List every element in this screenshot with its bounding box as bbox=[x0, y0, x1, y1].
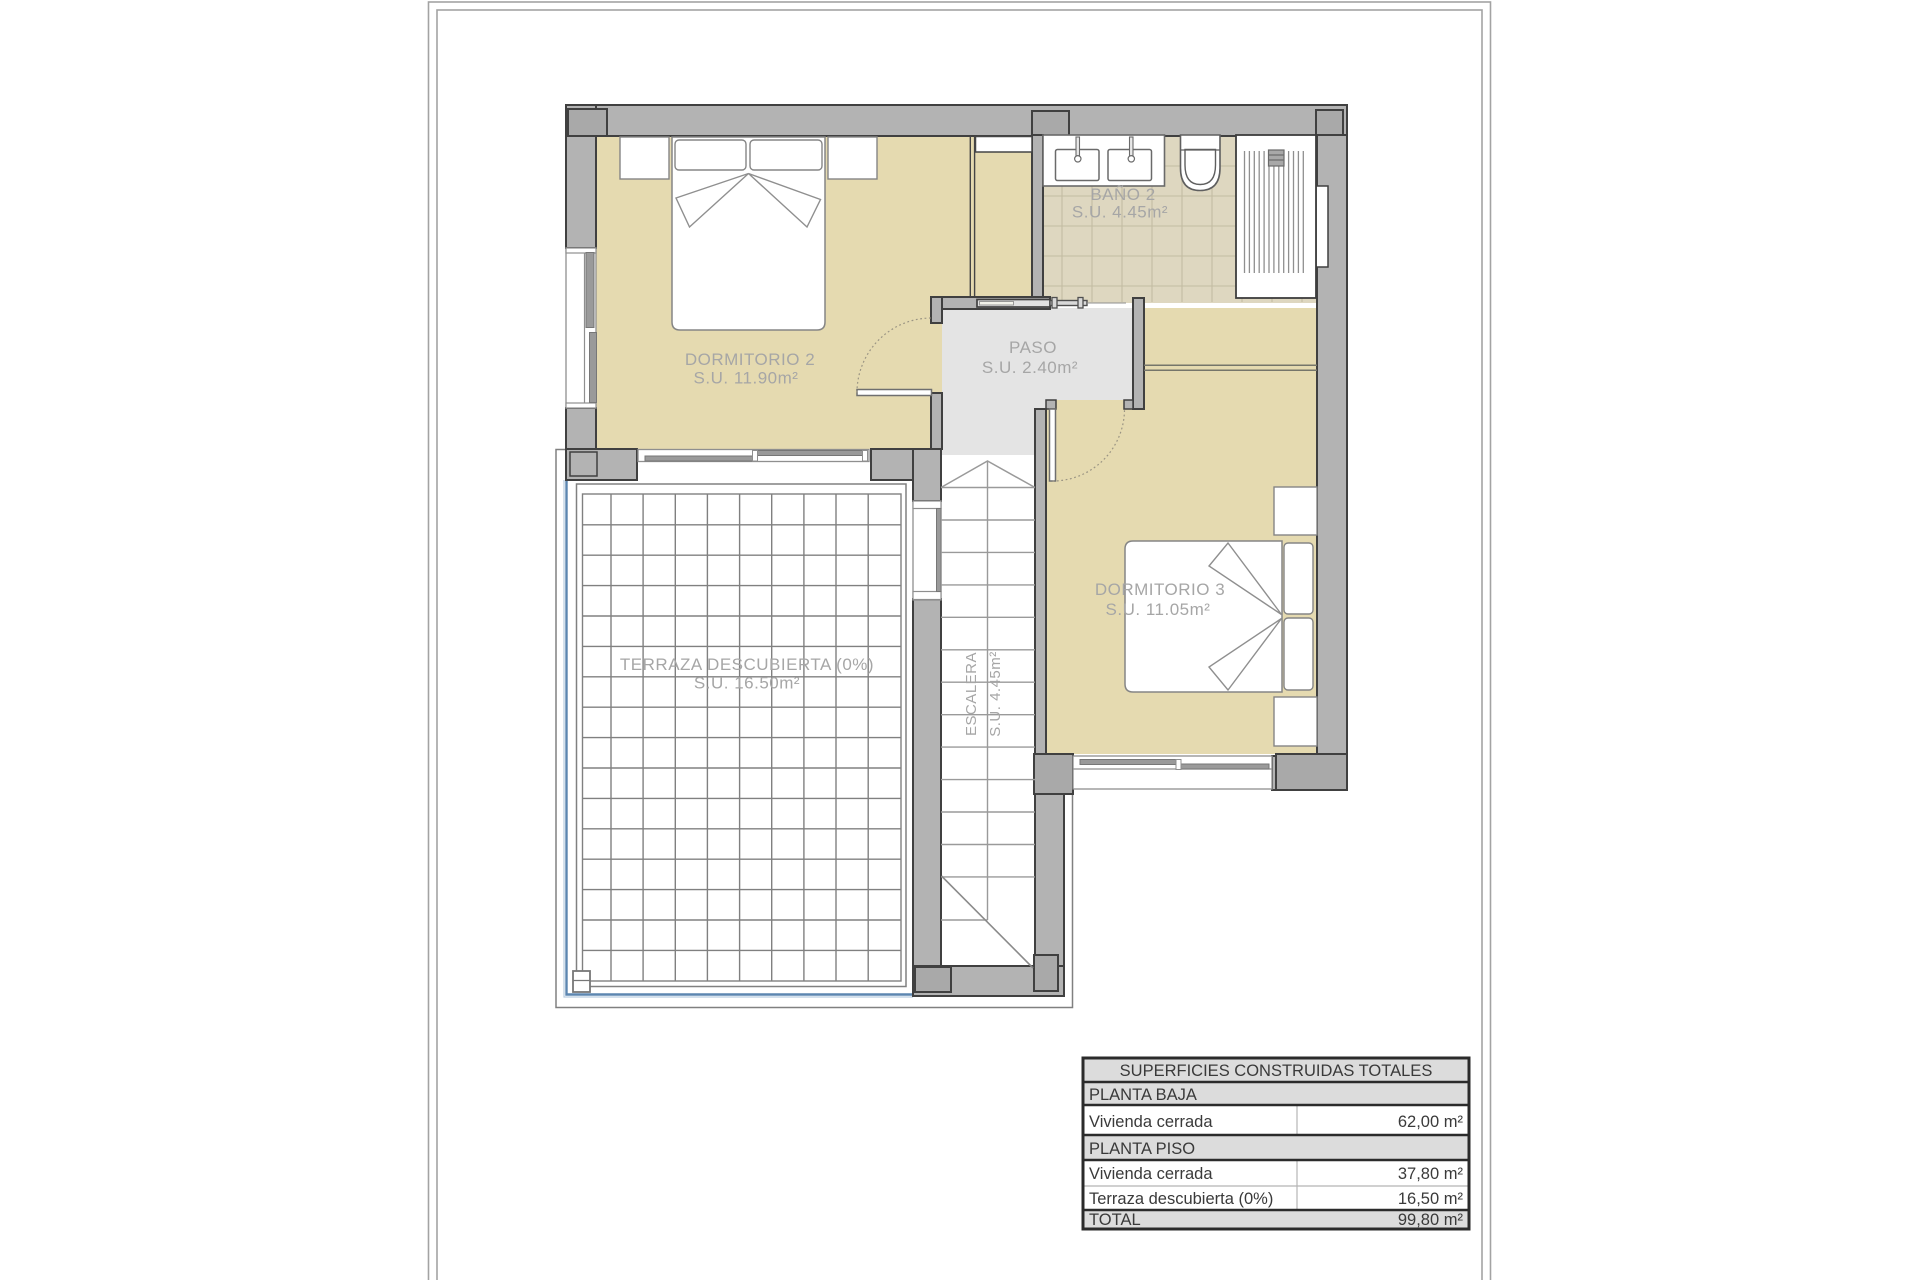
svg-text:S.U. 4.45m²: S.U. 4.45m² bbox=[1072, 203, 1168, 222]
svg-text:DORMITORIO 2: DORMITORIO 2 bbox=[685, 350, 815, 369]
svg-text:BAÑO 2: BAÑO 2 bbox=[1090, 185, 1155, 204]
svg-text:TERRAZA DESCUBIERTA (0%): TERRAZA DESCUBIERTA (0%) bbox=[620, 655, 874, 674]
svg-text:S.U. 2.40m²: S.U. 2.40m² bbox=[982, 358, 1078, 377]
svg-text:PASO: PASO bbox=[1009, 338, 1057, 357]
svg-text:Vivienda cerrada: Vivienda cerrada bbox=[1089, 1113, 1213, 1131]
svg-text:37,80 m²: 37,80 m² bbox=[1398, 1165, 1464, 1183]
svg-text:S.U. 11.90m²: S.U. 11.90m² bbox=[694, 369, 799, 388]
svg-text:TOTAL: TOTAL bbox=[1089, 1211, 1141, 1229]
svg-text:PLANTA PISO: PLANTA PISO bbox=[1089, 1140, 1195, 1158]
svg-text:16,50 m²: 16,50 m² bbox=[1398, 1190, 1464, 1208]
svg-text:S.U. 4.45m²: S.U. 4.45m² bbox=[987, 651, 1004, 737]
svg-text:ESCALERA: ESCALERA bbox=[963, 652, 980, 736]
svg-text:Terraza descubierta (0%): Terraza descubierta (0%) bbox=[1089, 1190, 1273, 1208]
svg-text:PLANTA BAJA: PLANTA BAJA bbox=[1089, 1086, 1197, 1104]
svg-text:SUPERFICIES CONSTRUIDAS TOTALE: SUPERFICIES CONSTRUIDAS TOTALES bbox=[1120, 1062, 1433, 1080]
svg-text:62,00 m²: 62,00 m² bbox=[1398, 1113, 1464, 1131]
svg-text:DORMITORIO 3: DORMITORIO 3 bbox=[1095, 580, 1225, 599]
svg-text:S.U. 16.50m²: S.U. 16.50m² bbox=[694, 674, 800, 693]
svg-text:Vivienda cerrada: Vivienda cerrada bbox=[1089, 1165, 1213, 1183]
svg-text:99,80 m²: 99,80 m² bbox=[1398, 1211, 1464, 1229]
svg-text:S.U. 11.05m²: S.U. 11.05m² bbox=[1106, 600, 1211, 619]
